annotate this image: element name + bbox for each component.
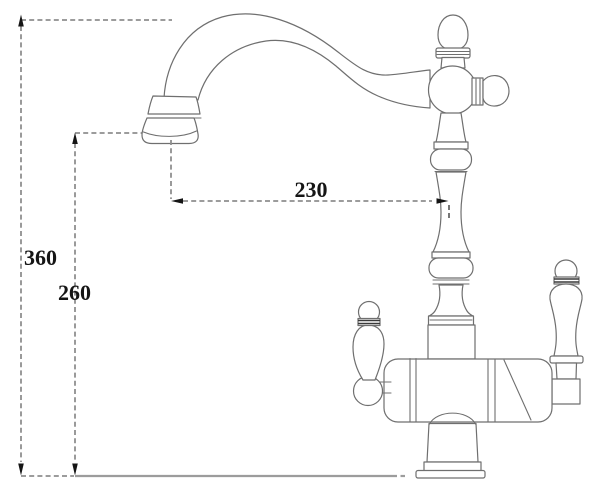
dimension-spout-reach: 230 (171, 140, 449, 218)
column-torus-1 (431, 149, 472, 170)
dim-230-label: 230 (295, 177, 328, 202)
column-ring-2 (432, 252, 470, 258)
base-assembly (416, 413, 485, 478)
dim-230-arrow-left-icon (171, 198, 183, 203)
side-knob (483, 76, 509, 106)
spout-tube (164, 14, 430, 108)
right-handle-collar (554, 277, 579, 284)
body-top-block (428, 325, 475, 359)
right-handle-mount-block (552, 379, 580, 404)
right-handle-stem (556, 363, 577, 379)
dim-360-label: 360 (24, 245, 57, 270)
column-ring-1 (434, 142, 468, 149)
base-column (427, 424, 478, 463)
barrel-outline (384, 359, 552, 422)
right-handle (550, 260, 583, 404)
side-knob-collar (472, 78, 483, 105)
left-handle-joint-ball (354, 377, 383, 406)
dimension-spout-outlet-height: 260 (58, 133, 146, 476)
finial-collar (436, 48, 470, 58)
left-handle-grip (353, 325, 384, 380)
right-handle-ring (550, 356, 583, 363)
left-handle-collar (358, 319, 380, 326)
dim-260-label: 260 (58, 280, 91, 305)
finial-knob (438, 15, 468, 50)
column-torus-2-lines (433, 280, 469, 284)
dimension-overall-height: 360 (18, 15, 172, 477)
base-plinth (424, 462, 481, 471)
outlet-cup (142, 118, 198, 144)
spout-outlet (142, 96, 201, 144)
column-shaft (433, 172, 469, 252)
dim-260-arrow-up-icon (72, 133, 78, 145)
outlet-flare (148, 96, 200, 114)
dim-360-arrow-down-icon (18, 464, 24, 476)
valve-ball-junction (429, 66, 477, 114)
right-handle-grip (550, 284, 582, 356)
faucet-drawing (142, 14, 583, 478)
column-torus-2 (429, 258, 473, 278)
base-plate (416, 471, 485, 479)
spout-column (428, 15, 509, 359)
drawing-canvas: 360 260 (0, 0, 600, 496)
column-neck-upper (436, 113, 466, 142)
column-neck-lower (429, 285, 473, 316)
faucet-dimension-diagram: 360 260 (0, 0, 600, 496)
body-barrel (384, 359, 552, 423)
dim-260-arrow-down-icon (72, 464, 78, 476)
